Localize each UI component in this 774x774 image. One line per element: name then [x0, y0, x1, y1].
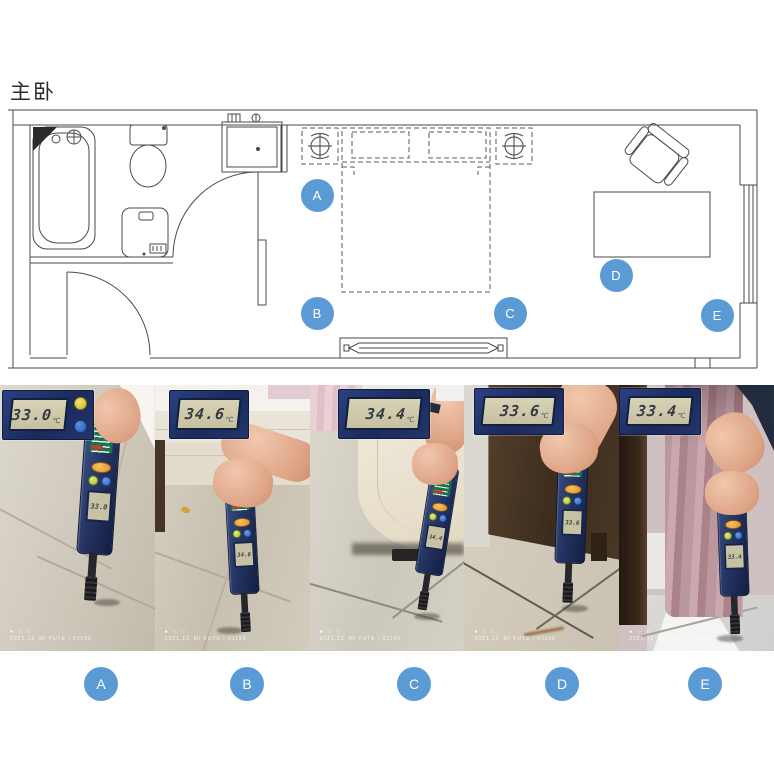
hand — [412, 443, 458, 485]
reading-unit: ℃ — [540, 412, 549, 424]
plan-marker-a: A — [301, 179, 334, 212]
plan-marker-d: D — [600, 259, 633, 292]
furniture-leg — [591, 533, 607, 561]
probe-shadow — [414, 613, 440, 620]
watermark: ● ○ ○ 2021.12MI FUTE | 01190 — [10, 629, 39, 643]
probe-tip — [417, 591, 429, 611]
blue-button-icon — [74, 420, 87, 433]
device-power-button — [725, 520, 742, 530]
plan-marker-e: E — [701, 299, 734, 332]
photo-label-a: A — [84, 667, 118, 701]
device-lcd: 34.4 — [424, 524, 447, 551]
probe-tip — [563, 582, 574, 603]
device-probe — [241, 592, 249, 614]
device-lcd: 33.6 — [562, 509, 584, 536]
reading-unit: ℃ — [405, 416, 414, 428]
device-button-blue — [101, 476, 112, 487]
device-button-green — [88, 475, 99, 486]
inset-lcd: 33.0℃ — [8, 398, 68, 431]
device-lcd: 33.4 — [724, 543, 745, 569]
watermark: ● ○ ○ 2021.12MI FUTE | 01190 — [165, 629, 194, 643]
furniture-edge — [155, 440, 165, 532]
measurement-inset: 34.6℃ — [169, 390, 249, 439]
plan-marker-b: B — [301, 297, 334, 330]
device-button-green — [563, 496, 572, 505]
device-power-button — [233, 518, 250, 528]
photo-b: 34.6 34.6℃ ● ○ ○ 2021.12MI FUTE | 01190 — [155, 385, 310, 651]
reading-unit: ℃ — [52, 417, 61, 429]
measurement-inset: 33.4℃ — [619, 388, 701, 435]
photo-label-d: D — [545, 667, 579, 701]
photo-d: 33.6 33.6℃ ● ○ ○ 2021.12MI FUTE | 01190 — [464, 385, 619, 651]
sleeve — [436, 385, 464, 401]
photo-e: 33.4 33.4℃ ● ○ ○ 2021.12MI FUTE | 01190 — [619, 385, 774, 651]
reading-unit: ℃ — [224, 416, 233, 428]
device-lcd: 34.6 — [233, 541, 255, 567]
measurement-photos: 33.0 33.0℃ ● ○ ○ 2021.12MI FUTE | 01190 — [0, 385, 774, 651]
measurement-inset: 34.4℃ — [338, 389, 430, 439]
device-probe — [565, 562, 573, 584]
watermark: ● ○ ○ 2021.12MI FUTE | 01190 — [629, 629, 658, 643]
page-title: 主卧 — [10, 76, 56, 106]
device-power-button — [565, 484, 582, 494]
device-button-blue — [734, 531, 742, 539]
device-power-button — [431, 502, 448, 513]
device-power-button — [91, 461, 112, 473]
hand — [705, 471, 759, 515]
reading-unit: ℃ — [677, 412, 686, 424]
floor-plan: ABCDE — [0, 105, 774, 385]
device-button-green — [428, 512, 437, 521]
photo-a: 33.0 33.0℃ ● ○ ○ 2021.12MI FUTE | 01190 — [0, 385, 155, 651]
inset-lcd: 33.6℃ — [481, 396, 557, 426]
curtain-glimpse — [268, 385, 310, 399]
watermark: ● ○ ○ 2021.12MI FUTE | 01190 — [474, 629, 503, 643]
watermark: ● ○ ○ 2021.12MI FUTE | 01190 — [320, 629, 349, 643]
small-object — [180, 506, 191, 515]
device-probe — [731, 595, 738, 617]
floor-plan-drawing — [0, 105, 774, 385]
page: 主卧 — [0, 0, 774, 774]
photo-c: 34.4 34.4℃ ● ○ ○ 2021.12MI FUTE | 01190 — [310, 385, 465, 651]
floor-stain — [524, 627, 564, 637]
photo-label-e: E — [688, 667, 722, 701]
probe-tip — [240, 612, 251, 632]
device-lcd: 33.0 — [85, 490, 112, 523]
inset-lcd: 34.4℃ — [344, 397, 422, 430]
device-button-green — [232, 530, 241, 539]
inset-lcd: 33.4℃ — [626, 396, 694, 426]
photo-labels: A B C D E — [0, 667, 774, 701]
plan-marker-c: C — [494, 297, 527, 330]
reading-value: 33.4 — [636, 402, 678, 420]
reading-value: 34.6 — [184, 405, 226, 423]
measurement-inset: 33.0℃ — [2, 390, 94, 440]
reading-value: 33.0 — [11, 406, 53, 424]
probe-shadow — [717, 635, 743, 642]
probe-tip — [730, 614, 741, 634]
photo-label-c: C — [397, 667, 431, 701]
inset-buttons — [71, 397, 89, 433]
measurement-inset: 33.6℃ — [474, 388, 564, 435]
device-button-blue — [243, 529, 252, 538]
tile-grout — [155, 549, 291, 602]
reading-value: 34.4 — [365, 405, 407, 423]
yellow-button-icon — [74, 397, 87, 410]
probe-tip — [84, 576, 98, 601]
device-button-blue — [574, 497, 583, 506]
inset-lcd: 34.6℃ — [175, 398, 241, 430]
device-button-green — [724, 532, 732, 540]
device-button-blue — [438, 514, 447, 523]
photo-label-b: B — [230, 667, 264, 701]
reading-value: 33.6 — [499, 402, 541, 420]
device-probe — [87, 552, 97, 578]
device-probe — [421, 572, 430, 593]
probe-shadow — [562, 605, 588, 612]
